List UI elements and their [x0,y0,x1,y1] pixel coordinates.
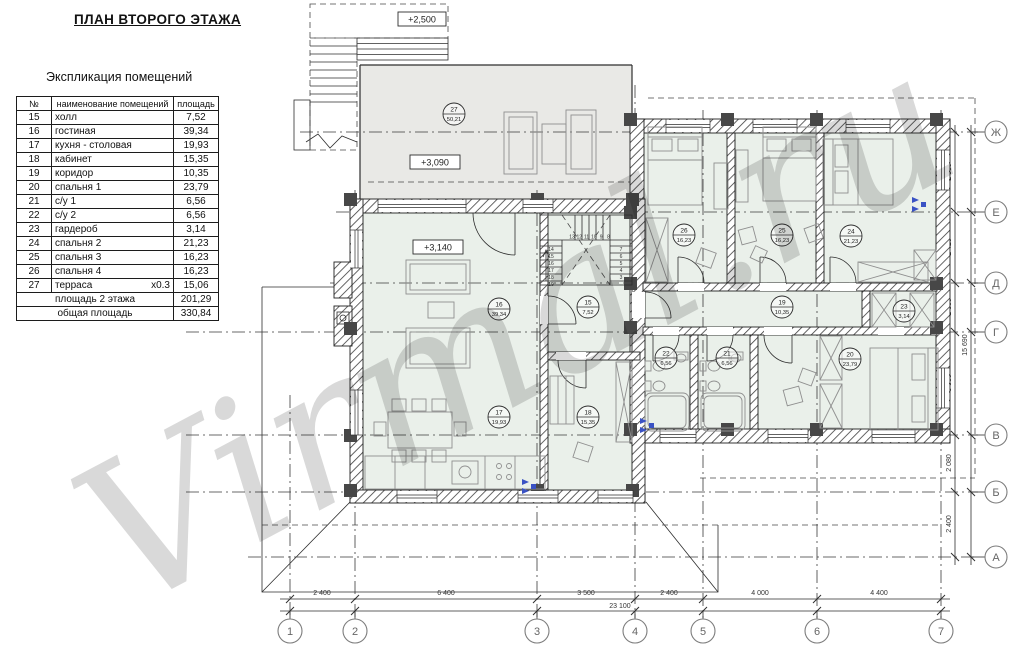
svg-text:22: 22 [662,351,670,358]
legend-row: 19коридор10,35 [17,167,219,181]
svg-text:2: 2 [352,626,358,638]
svg-text:26: 26 [680,228,688,235]
legend-row: 21с/у 16,56 [17,195,219,209]
legend-row: 15холл7,52 [17,111,219,125]
svg-text:11: 11 [584,235,589,241]
terrace-fill [360,65,632,205]
svg-text:2 400: 2 400 [660,590,678,597]
legend-row: 17кухня - столовая19,93 [17,139,219,153]
svg-text:5: 5 [620,261,623,267]
svg-text:Ж: Ж [991,127,1001,139]
svg-text:19,93: 19,93 [492,420,507,426]
svg-text:Е: Е [992,207,999,219]
svg-text:В: В [992,430,999,442]
svg-text:4 400: 4 400 [870,590,888,597]
room-marker-19: 1910,35 [771,296,793,318]
level-mark: +3,090 [421,158,449,168]
svg-text:6 400: 6 400 [437,590,455,597]
room-marker-24: 2421,23 [840,225,862,247]
svg-text:17: 17 [495,410,503,417]
legend-row: 25спальня 316,23 [17,251,219,265]
room-marker-23: 233,14 [893,300,915,322]
svg-text:23: 23 [900,304,908,311]
legend-row: 27террасаx0.315,06 [17,279,219,293]
svg-text:16,23: 16,23 [775,238,790,244]
svg-text:15,35: 15,35 [581,420,596,426]
svg-text:20: 20 [846,352,854,359]
svg-text:14: 14 [548,247,554,253]
svg-text:16,23: 16,23 [677,238,692,244]
legend-row: 20спальня 123,79 [17,181,219,195]
svg-text:17: 17 [548,268,554,274]
svg-text:А: А [992,552,1000,564]
total-overall-value: 330,84 [174,307,219,321]
svg-text:15: 15 [548,254,554,260]
room-marker-18: 1815,35 [577,406,599,428]
svg-text:19: 19 [778,300,786,307]
total-floor-value: 201,29 [174,293,219,307]
floor-plan-sheet: 1234567ЖЕДГВБА2 4006 4003 5002 4004 0004… [0,0,1032,657]
svg-text:6,56: 6,56 [660,361,671,367]
svg-text:Г: Г [993,327,999,339]
svg-text:2 080: 2 080 [946,454,953,472]
level-mark: +2,500 [408,15,436,25]
col-number: № [17,97,52,111]
room-marker-27: 2750,21 [443,103,465,125]
svg-text:18: 18 [548,275,554,281]
legend-row: 26спальня 416,23 [17,265,219,279]
svg-text:27: 27 [450,107,458,114]
svg-text:18: 18 [584,410,592,417]
col-name: наименование помещений [52,97,174,111]
break-line [306,134,357,148]
total-overall-label: общая площадь [17,307,174,321]
legend-heading: Экспликация помещений [46,70,192,84]
svg-text:4: 4 [620,268,623,274]
room-legend-table: № наименование помещений площадь 15холл7… [16,96,219,321]
svg-text:25: 25 [778,228,786,235]
room-marker-15: 157,52 [577,296,599,318]
svg-text:Д: Д [992,278,1000,290]
svg-text:1: 1 [287,626,293,638]
svg-text:3 500: 3 500 [577,590,595,597]
room-marker-26: 2616,23 [673,224,695,246]
room-marker-16: 1639,34 [488,298,510,320]
room-marker-20: 2023,79 [839,348,861,370]
svg-text:15: 15 [584,300,592,307]
svg-text:21,23: 21,23 [844,239,859,245]
svg-text:10: 10 [591,235,597,241]
svg-text:16: 16 [548,261,554,267]
legend-row: 22с/у 26,56 [17,209,219,223]
legend-row: 24спальня 221,23 [17,237,219,251]
svg-text:19: 19 [548,282,554,288]
svg-text:24: 24 [847,229,855,236]
svg-text:21: 21 [723,351,731,358]
svg-text:4: 4 [632,626,638,638]
legend-table: № наименование помещений площадь 15холл7… [16,96,219,321]
svg-text:3,14: 3,14 [898,314,910,320]
svg-text:23 100: 23 100 [609,603,631,610]
svg-text:6: 6 [814,626,820,638]
room-marker-25: 2516,23 [771,224,793,246]
svg-text:9: 9 [600,235,603,241]
svg-text:50,21: 50,21 [447,117,462,123]
svg-text:10,35: 10,35 [775,310,790,316]
svg-text:2 400: 2 400 [946,515,953,533]
svg-text:5: 5 [700,626,706,638]
legend-row: 23гардероб3,14 [17,223,219,237]
total-overall-row: общая площадь 330,84 [17,307,219,321]
chimney [334,262,352,298]
svg-text:Б: Б [992,487,999,499]
legend-row: 16гостиная39,34 [17,125,219,139]
svg-text:12: 12 [577,235,583,241]
svg-text:6,56: 6,56 [721,361,732,367]
room-marker-17: 1719,93 [488,406,510,428]
svg-text:3: 3 [620,275,623,281]
room-marker-21: 216,56 [716,347,738,369]
svg-text:6: 6 [620,254,623,260]
total-floor-label: площадь 2 этажа [17,293,174,307]
svg-text:3: 3 [534,626,540,638]
level-mark: +3,140 [424,243,452,253]
page-title: ПЛАН ВТОРОГО ЭТАЖА [74,12,241,27]
svg-text:4 000: 4 000 [751,590,769,597]
legend-row: 18кабинет15,35 [17,153,219,167]
svg-text:7: 7 [938,626,944,638]
room-marker-22: 226,56 [655,347,677,369]
total-floor-row: площадь 2 этажа 201,29 [17,293,219,307]
svg-text:23,79: 23,79 [843,362,858,368]
svg-text:39,34: 39,34 [492,312,507,318]
svg-text:15 690: 15 690 [962,334,969,356]
svg-text:2 400: 2 400 [313,590,331,597]
svg-text:13: 13 [569,235,575,241]
col-area: площадь [174,97,219,111]
svg-text:16: 16 [495,302,503,309]
svg-text:7: 7 [620,247,623,253]
svg-text:7,52: 7,52 [582,310,593,316]
svg-text:8: 8 [607,235,610,241]
